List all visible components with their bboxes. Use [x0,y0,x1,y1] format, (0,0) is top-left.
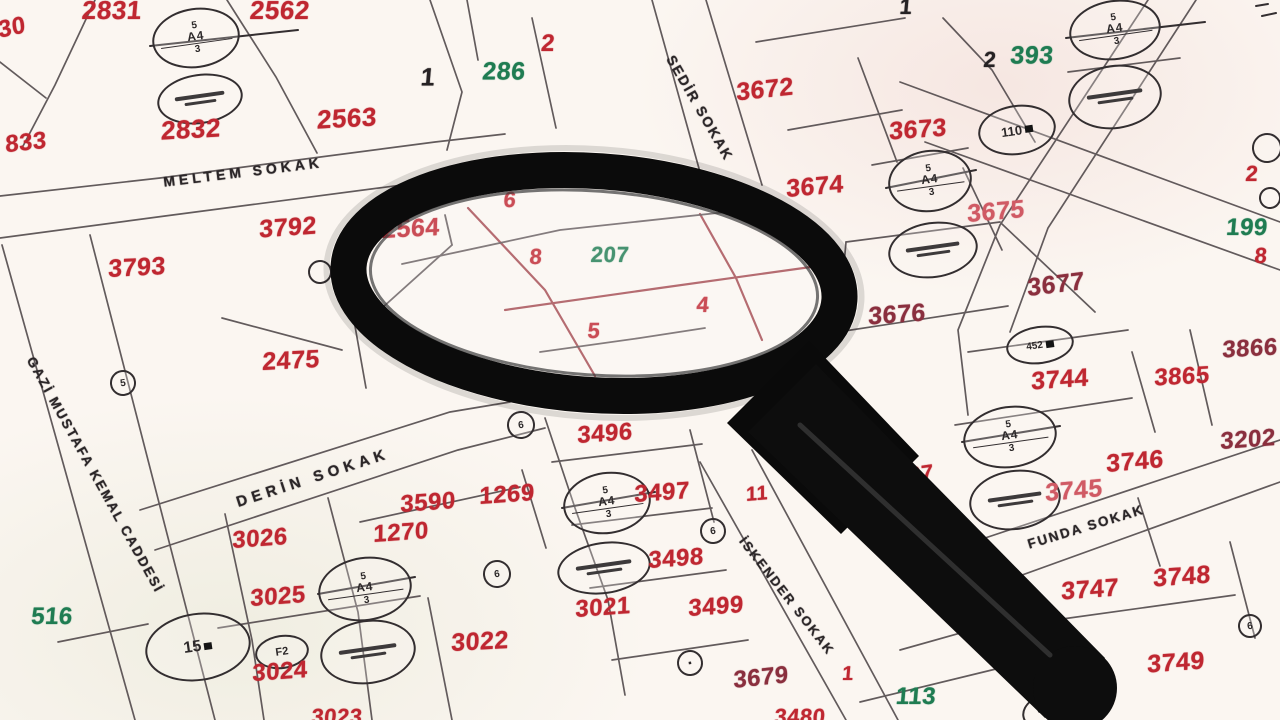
map-canvas: 5A435A435A435A435A435A4311015F24525666▪6… [0,0,1280,720]
magnifying-glass [0,0,1280,720]
handle-highlight [800,425,1050,655]
